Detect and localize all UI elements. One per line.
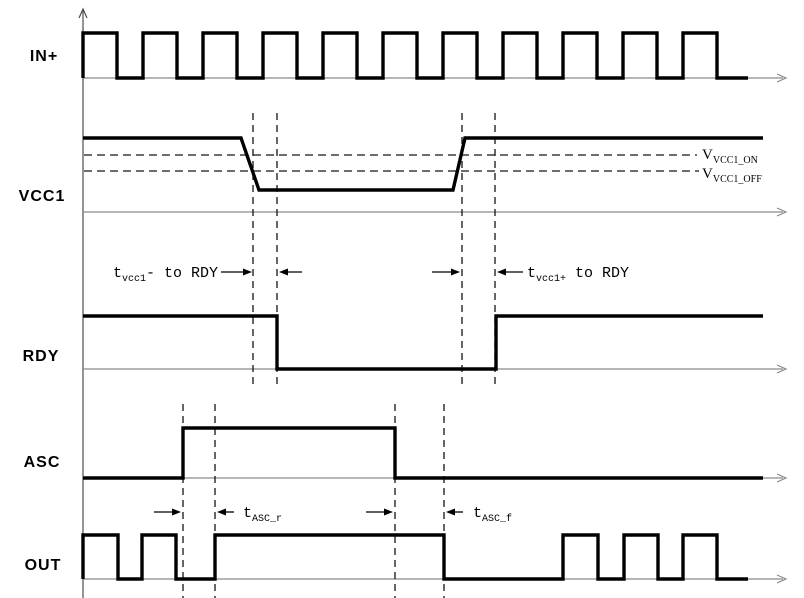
t-vcc1-minus-to-rdy-label: tvcc1- to RDY [113, 265, 218, 285]
signal-label-out: OUT [25, 557, 62, 574]
measure-arrowhead-icon-arrow-to-guide-rdy-fall [279, 269, 288, 276]
signal-label-vcc1: VCC1 [19, 188, 66, 205]
signal-label-in-plus: IN+ [30, 48, 58, 65]
t-asc-r-label: tASC_r [243, 505, 282, 525]
measure-arrowhead-icon-arrow-to-guide-asc-fall [384, 509, 393, 516]
waveform-asc-wave [83, 428, 763, 478]
v-vcc1-on-label: VVCC1_ON [702, 147, 758, 166]
waveform-in-plus-wave [83, 33, 748, 78]
timing-diagram-canvas: IN+VCC1RDYASCOUTVVCC1_ONVVCC1_OFFtvcc1- … [0, 0, 804, 598]
t-vcc1-plus-to-rdy-label: tvcc1+ to RDY [527, 265, 629, 285]
t-asc-f-label: tASC_f [473, 505, 512, 525]
measure-arrowhead-icon-arrow-to-guide-vcc1-off [243, 269, 252, 276]
measure-arrowhead-icon-arrow-to-guide-asc-rise [172, 509, 181, 516]
v-vcc1-off-label: VVCC1_OFF [702, 166, 762, 185]
waveform-rdy-wave [83, 316, 763, 369]
measure-arrowhead-icon-arrow-to-guide-out-fall [446, 509, 455, 516]
measure-arrowhead-icon-arrow-to-guide-out-rise [217, 509, 226, 516]
timing-diagram: IN+VCC1RDYASCOUTVVCC1_ONVVCC1_OFFtvcc1- … [0, 0, 804, 598]
measure-arrowhead-icon-arrow-to-guide-rdy-rise [497, 269, 506, 276]
measure-arrowhead-icon-arrow-to-guide-vcc1-on [451, 269, 460, 276]
signal-label-asc: ASC [24, 454, 61, 471]
signal-label-rdy: RDY [23, 348, 60, 365]
waveform-vcc1-wave [83, 138, 763, 190]
